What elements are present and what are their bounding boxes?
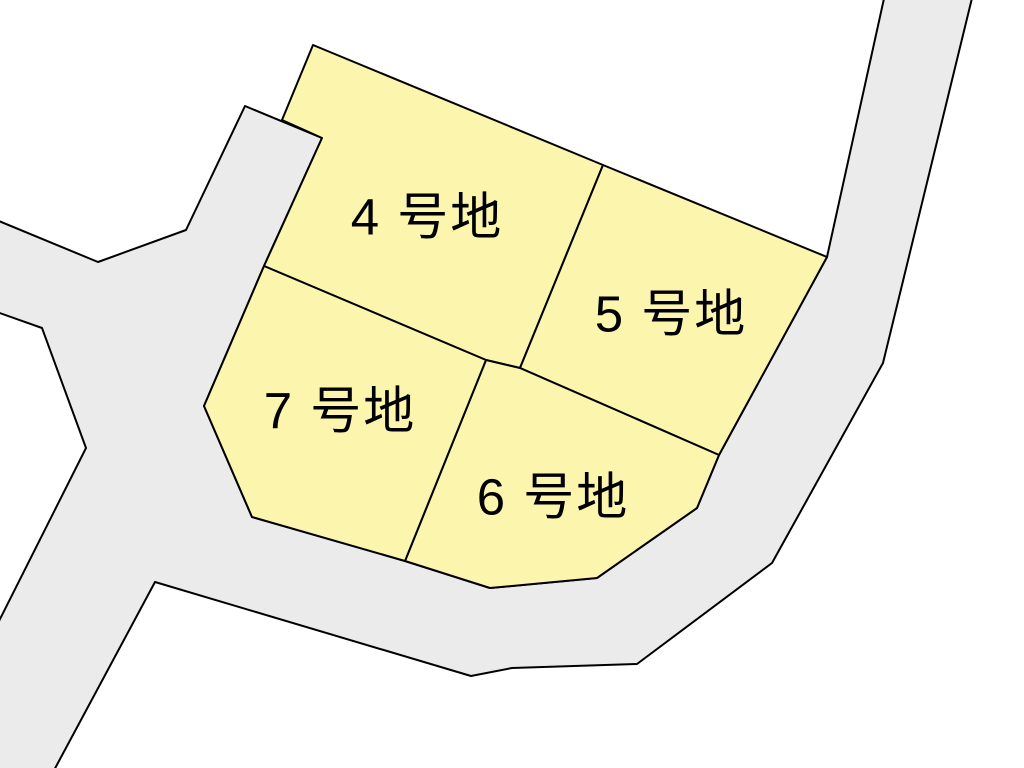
site-plan-page: 4 号地5 号地6 号地7 号地 [0, 0, 1024, 768]
lot-6-label: 6 号地 [477, 469, 630, 526]
lot-5-label: 5 号地 [595, 286, 748, 343]
lot-7-label: 7 号地 [264, 383, 417, 440]
site-plan-svg: 4 号地5 号地6 号地7 号地 [0, 0, 1024, 768]
lot-4-label: 4 号地 [351, 189, 504, 246]
